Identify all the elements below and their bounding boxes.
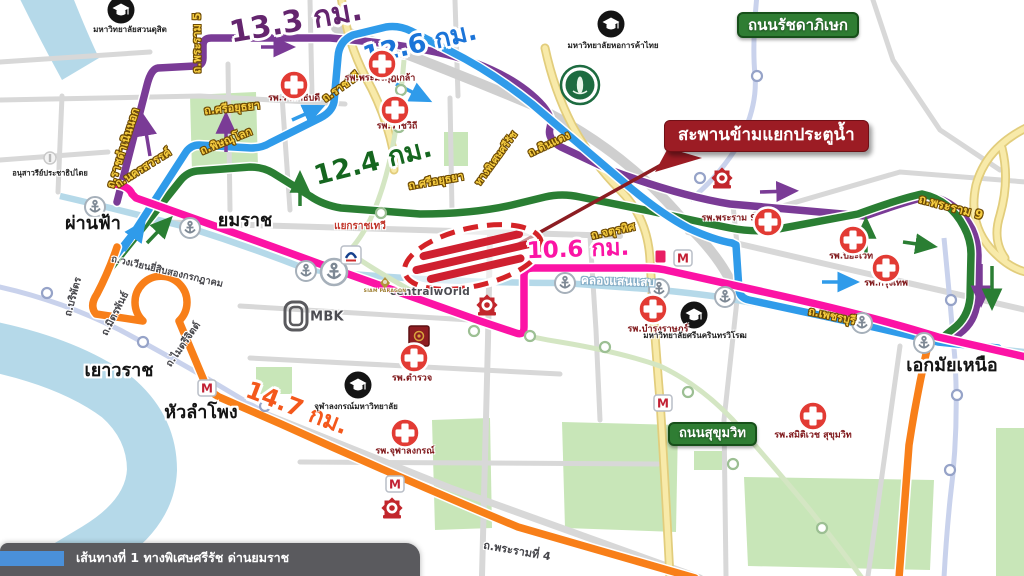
shrine-icon	[381, 497, 402, 518]
route-legend: เส้นทางที่ 1 ทางพิเศษศรีรัช ด่านยมราช เส…	[0, 543, 420, 576]
university-cap-icon	[681, 302, 708, 329]
route-map: M	[0, 0, 1024, 576]
transit-logo-icon	[655, 250, 666, 263]
anchor-icon	[715, 287, 735, 307]
mrt-logo-icon	[674, 250, 692, 266]
mrt-logo-icon	[386, 476, 404, 492]
anchor-icon	[180, 218, 200, 238]
anchor-icon	[555, 273, 575, 293]
university-cap-icon	[598, 11, 625, 38]
shrine-icon	[711, 167, 732, 188]
bridge-callout-banner: สะพานข้ามแยกประตูน้ำ	[664, 120, 869, 152]
legend-row-route1: เส้นทางที่ 1 ทางพิเศษศรีรัช ด่านยมราช	[0, 548, 420, 568]
monument-icon	[44, 152, 56, 164]
mrt-logo-icon	[198, 380, 216, 396]
legend-swatch-route1	[0, 551, 64, 566]
shrine-icon	[476, 294, 497, 315]
anchor-icon	[85, 197, 105, 217]
university-cap-icon	[345, 372, 372, 399]
map-canvas: M	[0, 0, 1024, 576]
anchor-icon	[296, 261, 316, 281]
mrt-logo-icon	[654, 395, 672, 411]
erawan-shrine-icon	[409, 326, 429, 346]
anchor-icon	[649, 279, 669, 299]
anchor-icon	[852, 313, 872, 333]
road-badge-ratchadaphisek: ถนนรัชดาภิเษก	[737, 12, 859, 38]
bangkok-seal-icon	[561, 66, 599, 104]
bts-logo-icon	[341, 246, 361, 264]
legend-label-route1: เส้นทางที่ 1 ทางพิเศษศรีรัช ด่านยมราช	[76, 548, 289, 568]
anchor-icon	[914, 333, 934, 353]
road-badge-sukhumvit: ถนนสุขุมวิท	[668, 422, 757, 446]
